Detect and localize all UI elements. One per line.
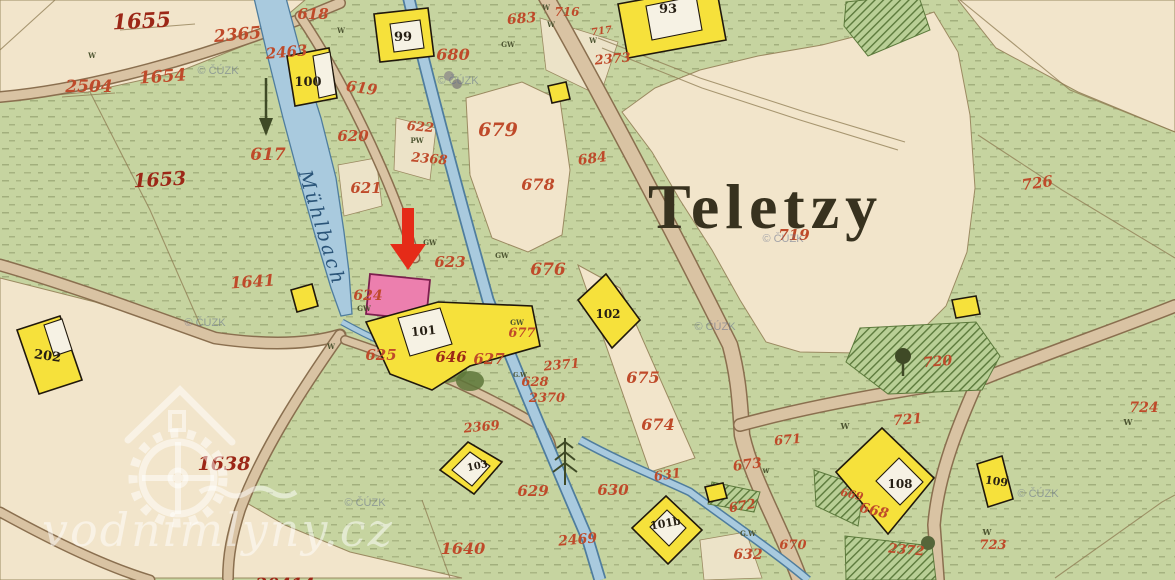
svg-text:W: W (336, 26, 345, 35)
parcel-623: 623 (434, 253, 465, 271)
parcel-618: 618 (297, 5, 329, 23)
parcel-675: 675 (626, 368, 659, 387)
parcel-1641: 1641 (230, 270, 276, 292)
svg-text:W: W (541, 3, 550, 12)
parcel-671: 671 (774, 432, 802, 449)
svg-text:W: W (1123, 417, 1134, 427)
svg-text:© ČÚZK: © ČÚZK (694, 320, 736, 333)
svg-text:GW: GW (357, 304, 371, 313)
house-99: 99 (394, 30, 412, 45)
parcel-2504: 2504 (64, 77, 112, 97)
parcel-680: 680 (436, 45, 469, 64)
place-title: Teletzy (648, 171, 883, 242)
parcel-720: 720 (922, 353, 953, 372)
parcel-724: 724 (1129, 400, 1158, 416)
map-canvas[interactable]: Mühlbach Teletzy 1655 2365 2463 2504 165… (0, 0, 1175, 580)
parcel-622: 622 (406, 119, 434, 136)
parcel-721: 721 (892, 411, 923, 429)
parcel-683: 683 (506, 10, 537, 29)
parcel-629: 629 (517, 482, 549, 500)
svg-text:W: W (546, 20, 555, 29)
parcel-1654: 1654 (138, 65, 187, 88)
parcel-620: 620 (337, 127, 369, 145)
parcel-723: 723 (979, 538, 1006, 553)
svg-text:PW: PW (410, 136, 423, 145)
parcel-2463: 2463 (264, 41, 308, 63)
parcel-2365: 2365 (212, 23, 262, 47)
parcel-630: 630 (597, 481, 629, 499)
svg-text:W: W (982, 527, 993, 537)
svg-text:GW: GW (510, 318, 524, 327)
parcel-678: 678 (521, 175, 554, 194)
parcel-627: 627 (473, 350, 505, 368)
svg-text:G.W: G.W (740, 529, 756, 538)
parcel-624: 624 (353, 288, 382, 304)
parcel-677: 677 (508, 326, 535, 341)
parcel-646: 646 (435, 348, 467, 366)
house-101: 101 (410, 323, 436, 340)
svg-text:© ČÚZK: © ČÚZK (1017, 487, 1059, 500)
svg-text:© ČÚZK: © ČÚZK (437, 74, 479, 87)
site-watermark-text: vodnimlyny.cz (42, 503, 394, 557)
svg-text:w: w (762, 465, 771, 475)
parcel-20414: 20414 (254, 575, 314, 580)
parcel-632: 632 (733, 547, 762, 563)
parcel-1653: 1653 (133, 168, 187, 193)
parcel-1640: 1640 (441, 539, 486, 558)
svg-text:W: W (840, 421, 851, 431)
svg-text:© ČÚZK: © ČÚZK (197, 64, 239, 77)
svg-text:GW: GW (423, 238, 437, 247)
svg-text:W: W (326, 342, 335, 351)
svg-text:GW: GW (495, 251, 509, 260)
svg-text:W: W (588, 36, 597, 45)
parcel-2370: 2370 (528, 391, 565, 406)
parcel-617: 617 (250, 145, 286, 165)
house-100: 100 (294, 75, 321, 90)
parcel-674: 674 (641, 415, 674, 434)
svg-text:G.W: G.W (513, 372, 527, 379)
svg-text:GW: GW (501, 40, 515, 49)
parcel-1655: 1655 (112, 6, 172, 34)
parcel-625: 625 (365, 346, 396, 364)
house-93: 93 (659, 2, 677, 17)
house-102: 102 (595, 307, 620, 321)
svg-text:© ČÚZK: © ČÚZK (762, 232, 804, 245)
parcel-621: 621 (350, 179, 381, 197)
cadastral-map: Mühlbach Teletzy 1655 2365 2463 2504 165… (0, 0, 1175, 580)
svg-text:© ČÚZK: © ČÚZK (184, 316, 226, 329)
parcel-676: 676 (530, 260, 566, 280)
house-108: 108 (887, 477, 912, 491)
parcel-670: 670 (779, 538, 806, 553)
parcel-716: 716 (554, 5, 580, 19)
parcel-679: 679 (478, 119, 518, 141)
svg-text:W: W (87, 51, 96, 60)
